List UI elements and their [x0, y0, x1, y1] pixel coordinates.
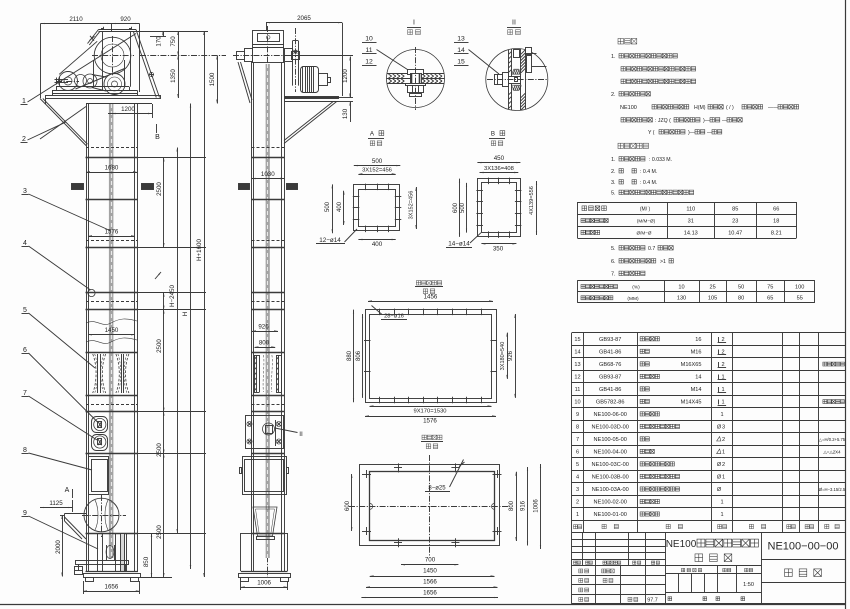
svg-text:700: 700 — [425, 556, 436, 563]
svg-text:400: 400 — [372, 241, 383, 248]
svg-text:850: 850 — [143, 556, 150, 567]
svg-text:97.7: 97.7 — [647, 597, 658, 603]
svg-text:806: 806 — [356, 350, 362, 361]
svg-text:8: 8 — [23, 447, 27, 454]
svg-text:500: 500 — [325, 201, 331, 212]
svg-text:NE100-02-00: NE100-02-00 — [594, 500, 627, 506]
svg-text:Ø: Ø — [717, 462, 722, 468]
svg-text:Ø: Ø — [717, 425, 722, 431]
svg-text:1030: 1030 — [261, 171, 275, 178]
svg-text:8: 8 — [576, 425, 579, 431]
svg-text:12−ø14: 12−ø14 — [319, 237, 341, 244]
svg-text:NE100-03C-00: NE100-03C-00 — [592, 462, 629, 468]
svg-text:1350: 1350 — [170, 69, 177, 83]
svg-text:△=H/0.2+5.75: △=H/0.2+5.75 — [819, 437, 846, 442]
svg-text:GB93-87: GB93-87 — [599, 375, 621, 381]
svg-text:H+1600: H+1600 — [196, 239, 203, 261]
svg-text:6: 6 — [23, 347, 27, 354]
svg-text:500: 500 — [372, 158, 383, 165]
svg-text:1576: 1576 — [423, 418, 437, 425]
svg-text:75: 75 — [767, 284, 773, 290]
svg-text:11: 11 — [575, 387, 581, 393]
svg-text:1456: 1456 — [424, 294, 438, 301]
svg-text:1006: 1006 — [534, 499, 540, 513]
svg-text:926: 926 — [508, 350, 514, 361]
svg-text:Ø: Ø — [717, 487, 722, 493]
svg-text:2.: 2. — [611, 92, 616, 98]
svg-text:B: B — [491, 131, 495, 138]
svg-text:1: 1 — [722, 400, 725, 406]
svg-text:12: 12 — [574, 375, 580, 381]
svg-text:(MM): (MM) — [627, 296, 639, 302]
svg-text:7: 7 — [576, 437, 579, 443]
svg-text:10.47: 10.47 — [728, 231, 742, 237]
svg-text:1680: 1680 — [105, 165, 119, 172]
svg-text:2110: 2110 — [69, 16, 83, 23]
svg-text:II: II — [299, 431, 303, 438]
svg-text:11: 11 — [365, 47, 372, 54]
svg-text:3X152=456: 3X152=456 — [409, 191, 415, 220]
svg-text:Ø/M−Ø: Ø/M−Ø — [637, 231, 652, 236]
svg-text:5: 5 — [576, 462, 579, 468]
svg-text:NE100-03B-00: NE100-03B-00 — [592, 475, 629, 481]
svg-text:: 0.4 M.: : 0.4 M. — [640, 169, 657, 175]
svg-text:12: 12 — [365, 59, 373, 66]
svg-text:2000: 2000 — [55, 540, 62, 554]
svg-text:2: 2 — [722, 437, 725, 443]
svg-text:1: 1 — [22, 98, 26, 105]
svg-text:1200: 1200 — [121, 106, 135, 113]
svg-text:△=△2X4: △=△2X4 — [823, 450, 841, 455]
svg-text:80: 80 — [738, 296, 744, 302]
svg-text:NE100−00−00: NE100−00−00 — [768, 541, 839, 553]
svg-text:3X136=408: 3X136=408 — [484, 166, 514, 172]
svg-text:1:50: 1:50 — [743, 582, 754, 588]
svg-text:NE100-01-00: NE100-01-00 — [594, 512, 627, 518]
svg-text:880: 880 — [347, 350, 353, 361]
svg-text:4X139=556: 4X139=556 — [529, 186, 535, 215]
svg-text:3: 3 — [23, 188, 27, 195]
svg-text:——: —— — [768, 105, 779, 111]
svg-text:GB41-86: GB41-86 — [599, 350, 621, 356]
svg-text:14: 14 — [457, 47, 465, 54]
svg-text:2500: 2500 — [156, 525, 163, 539]
svg-text:15: 15 — [457, 59, 465, 66]
svg-text:3X180=540: 3X180=540 — [500, 342, 506, 371]
svg-text:600: 600 — [345, 500, 351, 511]
svg-text:: JZQ (: : JZQ ( — [655, 118, 671, 124]
svg-text:GB93-87: GB93-87 — [599, 337, 621, 343]
svg-text:800: 800 — [509, 500, 515, 511]
svg-text:9: 9 — [576, 412, 579, 418]
svg-text:8.21: 8.21 — [771, 231, 782, 237]
svg-text:130: 130 — [677, 296, 686, 302]
svg-text:350: 350 — [493, 246, 504, 253]
svg-text:14−ø14: 14−ø14 — [448, 241, 470, 248]
svg-text:1.: 1. — [611, 157, 616, 163]
svg-text:(M/M−Ø): (M/M−Ø) — [637, 219, 656, 224]
svg-text:1450: 1450 — [423, 568, 437, 575]
svg-text:15: 15 — [574, 337, 580, 343]
svg-text:2500: 2500 — [156, 339, 163, 353]
svg-text:NE100-03A-00: NE100-03A-00 — [592, 487, 629, 493]
svg-text:5.: 5. — [611, 191, 616, 197]
svg-text:2500: 2500 — [156, 182, 163, 196]
svg-text:9: 9 — [23, 510, 27, 517]
svg-text:2: 2 — [22, 136, 26, 143]
svg-text:500: 500 — [460, 202, 466, 213]
svg-text:1: 1 — [721, 500, 724, 506]
svg-text:926: 926 — [258, 324, 269, 331]
svg-text:M14: M14 — [691, 387, 702, 393]
svg-text:1: 1 — [721, 512, 724, 518]
svg-text:2.: 2. — [611, 169, 616, 175]
svg-text:3X152=456: 3X152=456 — [362, 168, 392, 174]
svg-text:170: 170 — [156, 36, 163, 47]
svg-text:9X170=1530: 9X170=1530 — [413, 409, 446, 415]
svg-text:1: 1 — [722, 450, 725, 456]
svg-text:I: I — [413, 20, 415, 27]
svg-text:NE100: NE100 — [620, 105, 637, 111]
svg-text:6.: 6. — [611, 259, 616, 265]
svg-text:10: 10 — [678, 284, 684, 290]
svg-text:16: 16 — [695, 337, 701, 343]
svg-text:23: 23 — [732, 219, 738, 225]
svg-text:NE100-03D-00: NE100-03D-00 — [592, 425, 629, 431]
svg-text:1200: 1200 — [342, 69, 349, 83]
svg-text:M16X65: M16X65 — [681, 362, 702, 368]
svg-text:85: 85 — [732, 207, 738, 213]
svg-text:1656: 1656 — [105, 584, 119, 591]
svg-text:800: 800 — [259, 340, 270, 347]
svg-text:10: 10 — [574, 400, 580, 406]
svg-text:1566: 1566 — [423, 579, 437, 586]
svg-text:Ø=H−3.15/2.5: Ø=H−3.15/2.5 — [819, 487, 846, 492]
svg-text:H−2450: H−2450 — [169, 285, 176, 307]
svg-text:4: 4 — [23, 240, 27, 247]
svg-text:7: 7 — [23, 390, 27, 397]
svg-text:100: 100 — [795, 284, 804, 290]
svg-text:28−ø16: 28−ø16 — [384, 314, 404, 320]
svg-text:6: 6 — [576, 450, 579, 456]
svg-text:14: 14 — [695, 375, 701, 381]
svg-text:5.: 5. — [611, 246, 616, 252]
svg-text:105: 105 — [708, 296, 717, 302]
svg-text:>1: >1 — [660, 259, 666, 265]
svg-text:Ø: Ø — [717, 475, 722, 481]
svg-text:1: 1 — [576, 512, 579, 518]
svg-text:5: 5 — [23, 307, 27, 314]
svg-text:7.: 7. — [611, 272, 616, 278]
svg-text:14.13: 14.13 — [684, 231, 698, 237]
svg-text:1006: 1006 — [257, 580, 271, 587]
svg-text:600: 600 — [453, 202, 459, 213]
svg-text:920: 920 — [120, 16, 131, 23]
svg-text:2: 2 — [722, 462, 725, 468]
svg-text:(%): (%) — [632, 285, 640, 291]
svg-text:( / ): ( / ) — [726, 105, 734, 111]
svg-text:3.: 3. — [611, 180, 616, 186]
svg-text:1.: 1. — [611, 54, 616, 60]
svg-text:50: 50 — [738, 284, 744, 290]
svg-text:GB41-86: GB41-86 — [599, 387, 621, 393]
svg-text:Y (: Y ( — [648, 130, 655, 136]
svg-text:NE100-06-00: NE100-06-00 — [594, 412, 627, 418]
svg-text:450: 450 — [494, 155, 505, 162]
svg-text:)—: )— — [688, 130, 696, 136]
svg-text:)—: )— — [703, 118, 711, 124]
svg-text:M14X45: M14X45 — [681, 400, 702, 406]
svg-text:31: 31 — [688, 219, 694, 225]
svg-text:1125: 1125 — [49, 500, 63, 507]
svg-text:110: 110 — [686, 207, 695, 213]
svg-text:A: A — [65, 487, 70, 494]
svg-text:130: 130 — [342, 108, 349, 119]
svg-text:25: 25 — [709, 284, 715, 290]
svg-text:4: 4 — [576, 475, 579, 481]
svg-text:II: II — [512, 20, 516, 27]
svg-text:2: 2 — [576, 500, 579, 506]
svg-text:8−ø25: 8−ø25 — [428, 486, 446, 492]
svg-text:1656: 1656 — [423, 589, 437, 596]
svg-text:1500: 1500 — [209, 72, 216, 86]
svg-text:65: 65 — [767, 296, 773, 302]
svg-text:750: 750 — [170, 36, 177, 47]
svg-text:400: 400 — [337, 201, 343, 212]
svg-text:0.7: 0.7 — [648, 246, 655, 252]
svg-text:2500: 2500 — [156, 443, 163, 457]
svg-text:GB5782-86: GB5782-86 — [596, 400, 625, 406]
svg-text:1: 1 — [722, 475, 725, 481]
svg-text:916: 916 — [521, 500, 527, 511]
svg-text:3: 3 — [722, 425, 725, 431]
svg-text:: 0.4 M.: : 0.4 M. — [640, 180, 657, 186]
svg-text:B: B — [155, 134, 160, 141]
svg-text:13: 13 — [574, 362, 580, 368]
svg-text:2065: 2065 — [297, 15, 311, 22]
svg-text:3: 3 — [576, 487, 579, 493]
svg-text:18: 18 — [773, 219, 779, 225]
svg-text:NE100: NE100 — [666, 539, 697, 550]
svg-text:GB68-76: GB68-76 — [599, 362, 621, 368]
svg-text:H: H — [182, 312, 189, 316]
svg-text:14: 14 — [574, 350, 580, 356]
svg-text:(M/ ): (M/ ) — [640, 207, 651, 213]
svg-text:H(M): H(M) — [694, 105, 706, 111]
svg-text:13: 13 — [457, 36, 465, 43]
svg-text:1450: 1450 — [105, 327, 119, 334]
svg-text:66: 66 — [773, 207, 779, 213]
svg-text:1: 1 — [721, 412, 724, 418]
svg-text:NE100-05-00: NE100-05-00 — [594, 437, 627, 443]
svg-text:: 0.033 M.: : 0.033 M. — [649, 157, 672, 163]
svg-text:M16: M16 — [691, 350, 702, 356]
svg-text:10: 10 — [365, 36, 373, 43]
svg-text:55: 55 — [797, 296, 803, 302]
svg-text:NE100-04-00: NE100-04-00 — [594, 450, 627, 456]
